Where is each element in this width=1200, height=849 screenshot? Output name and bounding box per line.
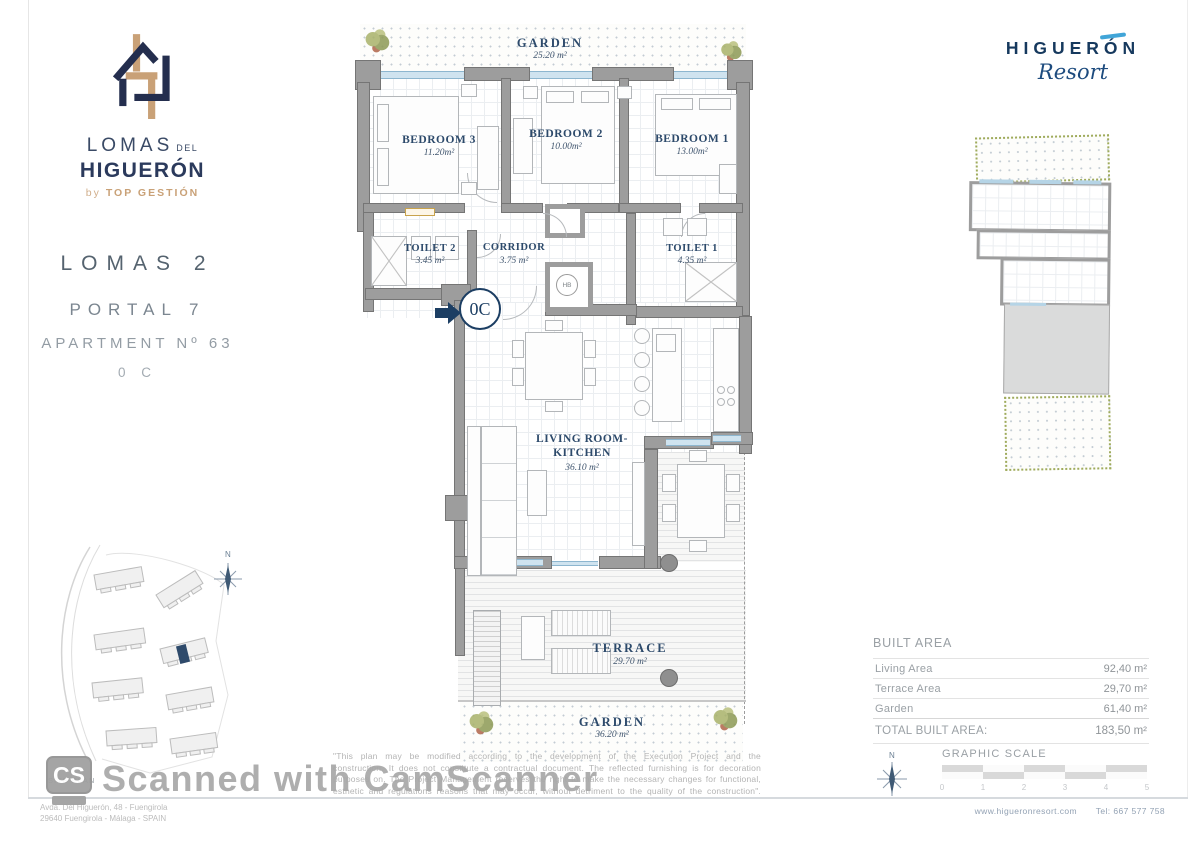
terrace-edge-bottom xyxy=(458,700,746,702)
sofa-back xyxy=(467,426,481,576)
footer-contact: www.higueronresort.com Tel: 667 577 758 xyxy=(810,806,1165,816)
planter xyxy=(473,610,501,706)
room-label-corridor: CORRIDOR xyxy=(483,242,545,253)
window xyxy=(1010,303,1046,306)
outdoor-table xyxy=(677,464,725,538)
resort-logo: HIGUERÓN Resort xyxy=(978,38,1168,84)
camscanner-text: Scanned with CamScanner xyxy=(102,758,662,800)
row-value: 61,40 m² xyxy=(1104,703,1147,715)
cooktop-burner xyxy=(727,398,735,406)
room-area-living: 36.10 m² xyxy=(565,463,598,473)
cooktop-burner xyxy=(727,386,735,394)
chair xyxy=(545,320,563,331)
tv-unit xyxy=(632,462,645,546)
sliding-door xyxy=(552,561,598,566)
camscanner-logo-base xyxy=(52,796,86,805)
plant xyxy=(711,706,739,734)
room-label-toilet2: TOILET 2 xyxy=(404,243,456,254)
wall xyxy=(619,203,681,213)
north-compass-icon: N xyxy=(872,750,912,803)
total-label: TOTAL BUILT AREA: xyxy=(875,725,987,737)
wardrobe xyxy=(477,126,499,190)
pillow xyxy=(377,148,389,186)
wall xyxy=(592,67,674,81)
room-label-garden-top: GARDEN xyxy=(517,36,583,51)
room-label-toilet1: TOILET 1 xyxy=(666,243,718,254)
resort-logo-script: Resort xyxy=(978,60,1168,84)
desk xyxy=(719,164,737,194)
built-area-title: BUILT AREA xyxy=(873,636,1149,650)
scale-tick: 5 xyxy=(1145,783,1149,792)
dining-table xyxy=(525,332,583,400)
chair xyxy=(584,368,596,386)
nightstand xyxy=(523,86,538,99)
room-area-bedroom3: 11.20m² xyxy=(424,148,454,158)
key-plan-terrace xyxy=(1003,304,1110,395)
footer-phone: Tel: 667 577 758 xyxy=(1096,806,1165,816)
lomas-logo: LOMASDEL HIGUERÓN by TOP GESTIÓN xyxy=(55,30,230,199)
graphic-scale-title: GRAPHIC SCALE xyxy=(942,748,1047,760)
sun-lounger xyxy=(551,610,611,636)
window xyxy=(1029,180,1061,184)
entrance-badge-label: 0C xyxy=(469,299,490,319)
room-area-bedroom1: 13.00m² xyxy=(676,147,707,157)
row-label: Garden xyxy=(875,703,914,715)
room-label-bedroom3: BEDROOM 3 xyxy=(402,134,476,146)
resort-logo-name: HIGUERÓN xyxy=(1006,38,1140,59)
wall xyxy=(736,82,750,316)
page-border-right xyxy=(1187,0,1188,797)
sofa-seat xyxy=(481,426,517,576)
stool xyxy=(634,328,650,344)
chair xyxy=(512,368,524,386)
room-label-living-2: KITCHEN xyxy=(553,447,611,459)
kitchen-sink xyxy=(656,334,676,352)
wardrobe xyxy=(513,118,533,174)
camscanner-logo-icon: CS xyxy=(46,756,92,794)
key-plan-living xyxy=(1000,257,1110,306)
room-area-corridor: 3.75 m² xyxy=(500,256,529,266)
table-total-row: TOTAL BUILT AREA: 183,50 m² xyxy=(873,718,1149,744)
cooktop-burner xyxy=(717,398,725,406)
room-area-garden-top: 25.20 m² xyxy=(533,51,566,61)
chair xyxy=(512,340,524,358)
total-value: 183,50 m² xyxy=(1095,725,1147,737)
plant xyxy=(467,710,495,738)
nightstand xyxy=(461,182,477,195)
lomas-house-icon xyxy=(107,30,179,131)
room-label-bedroom2: BEDROOM 2 xyxy=(529,128,603,140)
chair xyxy=(662,474,676,492)
apartment-label: APARTMENT Nº 63 xyxy=(25,335,250,352)
scale-tick: 3 xyxy=(1063,783,1067,792)
hb-label: HB xyxy=(562,282,571,289)
sink xyxy=(663,218,683,236)
scale-tick: 2 xyxy=(1022,783,1026,792)
pillow xyxy=(546,91,574,103)
row-value: 29,70 m² xyxy=(1104,683,1147,695)
kitchen-counter xyxy=(713,328,739,432)
window xyxy=(979,179,1013,183)
key-plan-middle xyxy=(977,229,1111,260)
terrace-main-deck xyxy=(458,570,746,702)
column xyxy=(660,669,678,687)
key-plan-garden-top xyxy=(975,134,1110,183)
site-plan-compass-icon: N xyxy=(214,550,242,595)
entrance-badge: 0C xyxy=(459,288,501,330)
wall xyxy=(636,306,743,318)
key-plan-garden-bottom xyxy=(1004,395,1111,471)
towel-rail xyxy=(405,208,435,216)
lomas-logo-byline: TOP GESTIÓN xyxy=(106,187,199,199)
wall xyxy=(699,203,743,213)
unit-code: 0 C xyxy=(25,365,250,380)
row-label: Living Area xyxy=(875,663,933,675)
site-plan: N SITE PLAN xyxy=(28,543,263,788)
hb-label-circle: HB xyxy=(556,274,578,296)
floor-plan: HB 0C xyxy=(355,22,757,764)
column xyxy=(660,554,678,572)
window xyxy=(713,435,741,442)
room-label-terrace: TERRACE xyxy=(592,641,667,656)
nightstand xyxy=(617,86,632,99)
scale-tick: 4 xyxy=(1104,783,1108,792)
stool xyxy=(634,376,650,392)
window xyxy=(1073,180,1101,184)
side-table xyxy=(521,616,545,660)
chair xyxy=(689,540,707,552)
key-plan-bedrooms xyxy=(969,181,1112,232)
key-plan xyxy=(946,125,1155,495)
lomas-logo-word1-suffix: DEL xyxy=(176,143,198,153)
footer-website[interactable]: www.higueronresort.com xyxy=(975,806,1077,816)
row-value: 92,40 m² xyxy=(1104,663,1147,675)
entrance-arrow-icon xyxy=(435,302,461,329)
window xyxy=(365,71,737,79)
graphic-scale: N GRAPHIC SCALE 0 1 2 3 4 5 xyxy=(862,748,1162,800)
stool xyxy=(634,352,650,368)
wall xyxy=(501,78,511,210)
room-area-bedroom2: 10.00m² xyxy=(550,142,581,152)
lomas-logo-word1: LOMAS xyxy=(87,135,174,156)
wall xyxy=(644,449,658,569)
row-label: Terrace Area xyxy=(875,683,941,695)
shower xyxy=(685,262,737,302)
scale-tick: 1 xyxy=(981,783,985,792)
coffee-table xyxy=(527,470,547,516)
chair xyxy=(662,504,676,522)
sink xyxy=(687,218,707,236)
svg-text:N: N xyxy=(225,550,231,559)
pillow xyxy=(377,104,389,142)
window xyxy=(666,439,710,446)
stool xyxy=(634,400,650,416)
chair xyxy=(584,340,596,358)
chair xyxy=(726,474,740,492)
pillow xyxy=(661,98,693,110)
room-area-toilet2: 3.45 m² xyxy=(416,256,445,266)
wall xyxy=(501,203,543,213)
pillow xyxy=(699,98,731,110)
lomas-logo-by: by xyxy=(86,187,101,199)
room-label-living-1: LIVING ROOM- xyxy=(536,433,628,445)
scale-bar xyxy=(942,765,1147,779)
footer-address-line2: 29640 Fuengirola - Málaga - SPAIN xyxy=(40,814,167,825)
table-row: Terrace Area 29,70 m² xyxy=(873,678,1149,698)
svg-text:N: N xyxy=(889,751,895,760)
wall xyxy=(464,67,530,81)
project-name: LOMAS 2 xyxy=(25,252,250,276)
wall xyxy=(454,300,465,568)
chair xyxy=(726,504,740,522)
cooktop-burner xyxy=(717,386,725,394)
room-label-garden-bottom: GARDEN xyxy=(579,715,645,730)
table-row: Living Area 92,40 m² xyxy=(873,658,1149,678)
portal-label: PORTAL 7 xyxy=(25,300,250,320)
room-area-terrace: 29.70 m² xyxy=(613,657,646,667)
scale-tick: 0 xyxy=(940,783,944,792)
plant xyxy=(363,28,391,56)
nightstand xyxy=(461,84,477,97)
room-area-toilet1: 4.35 m² xyxy=(678,256,707,266)
chair xyxy=(689,450,707,462)
lomas-logo-word2: HIGUERÓN xyxy=(55,159,230,183)
room-area-garden-bottom: 36.20 m² xyxy=(595,730,628,740)
unit-info: LOMAS 2 PORTAL 7 APARTMENT Nº 63 0 C xyxy=(25,252,250,380)
chair xyxy=(545,401,563,412)
pillow xyxy=(581,91,609,103)
terrace-edge-right xyxy=(744,452,746,724)
footer-address: Avda. Del Higuerón, 48 - Fuengirola 2964… xyxy=(40,803,167,824)
wall xyxy=(455,568,465,656)
table-row: Garden 61,40 m² xyxy=(873,698,1149,718)
room-label-bedroom1: BEDROOM 1 xyxy=(655,133,729,145)
shower xyxy=(371,236,407,286)
built-area-table: BUILT AREA Living Area 92,40 m² Terrace … xyxy=(873,636,1149,744)
